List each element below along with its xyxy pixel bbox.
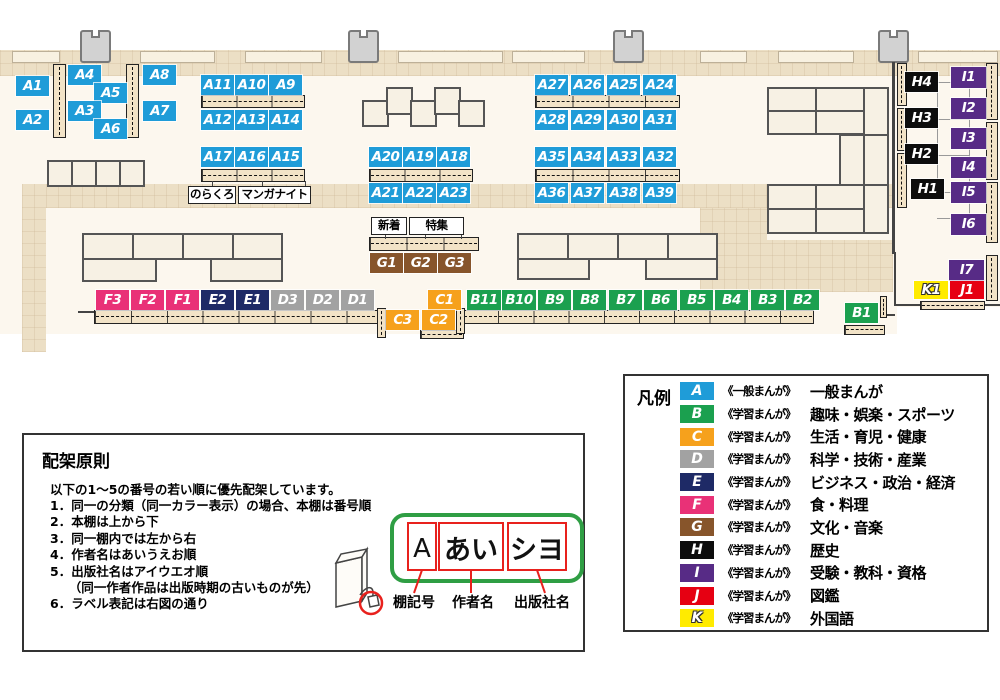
table-cell xyxy=(362,100,389,127)
shelf-label-A22: A22 xyxy=(403,183,436,203)
wall-right xyxy=(892,62,895,254)
legend-category: 趣味・娯楽・スポーツ xyxy=(810,404,955,425)
shelf-label-B6: B6 xyxy=(644,290,677,310)
table-cell xyxy=(767,87,817,112)
shelf-lead-line xyxy=(78,311,94,313)
shelf-label-A23: A23 xyxy=(437,183,470,203)
legend-category: 生活・育児・健康 xyxy=(810,426,926,447)
legend-row-D: D《学習まんが》科学・技術・産業 xyxy=(680,448,981,471)
bookshelf-strip-vertical xyxy=(53,64,66,138)
legend-badge-K: K xyxy=(680,609,714,627)
table-cell xyxy=(767,184,817,210)
shelf-label-A35: A35 xyxy=(535,147,568,167)
legend-badge-I: I xyxy=(680,564,714,582)
bookshelf-strip-vertical xyxy=(986,182,998,243)
shelf-label-D1: D1 xyxy=(341,290,374,310)
table-cell xyxy=(182,233,234,260)
legend-category: 外国語 xyxy=(810,608,854,629)
shelf-label-H4: H4 xyxy=(905,72,938,92)
caption-shelf-code: 棚記号 xyxy=(393,594,435,611)
shelf-label-I4: I4 xyxy=(951,157,986,178)
shelf-label-C1: C1 xyxy=(428,290,461,310)
table-cell xyxy=(863,134,889,188)
wall-segment xyxy=(12,51,60,63)
legend-row-A: A《一般まんが》一般まんが xyxy=(680,380,981,403)
legend-row-I: I《学習まんが》受験・教科・資格 xyxy=(680,562,981,585)
shelf-label-A13: A13 xyxy=(235,110,268,130)
shelf-label-H2: H2 xyxy=(905,144,938,164)
shelf-label-A18: A18 xyxy=(437,147,470,167)
legend-rows: A《一般まんが》一般まんがB《学習まんが》趣味・娯楽・スポーツC《学習まんが》生… xyxy=(680,380,981,630)
legend-category: 図鑑 xyxy=(810,585,839,606)
shelf-label-A36: A36 xyxy=(535,183,568,203)
shelf-label-I6: I6 xyxy=(951,214,986,235)
shelf-label-D2: D2 xyxy=(306,290,339,310)
legend-prefix: 《学習まんが》 xyxy=(722,429,810,445)
table-cell xyxy=(458,100,485,127)
author-sample: あい xyxy=(444,535,498,566)
table-cell xyxy=(82,258,157,282)
legend-badge-C: C xyxy=(680,428,714,446)
table-cell xyxy=(815,184,865,210)
legend-prefix: 《学習まんが》 xyxy=(722,451,810,467)
shelf-label-A27: A27 xyxy=(535,75,568,95)
shelf-label-A21: A21 xyxy=(369,183,402,203)
shelf-label-B10: B10 xyxy=(502,290,536,310)
legend-prefix: 《学習まんが》 xyxy=(722,406,810,422)
wall-segment xyxy=(398,51,503,63)
shelf-label-A20: A20 xyxy=(369,147,402,167)
publisher-sample: シヨ xyxy=(510,535,564,566)
shelf-label-A6: A6 xyxy=(94,119,127,139)
shelf-label-A37: A37 xyxy=(571,183,604,203)
book-icon xyxy=(336,549,382,614)
shelf-label-A12: A12 xyxy=(201,110,234,130)
shelf-label-A30: A30 xyxy=(607,110,640,130)
shelf-label-G3: G3 xyxy=(438,253,471,273)
pillar xyxy=(613,30,644,63)
shelf-label-H1: H1 xyxy=(911,179,944,199)
shelf-label-E2: E2 xyxy=(201,290,234,310)
legend-badge-G: G xyxy=(680,518,714,536)
shelf-label-A9: A9 xyxy=(269,75,302,95)
bookshelf-strip xyxy=(369,237,479,251)
legend-category: ビジネス・政治・経済 xyxy=(810,472,955,493)
shelf-label-A38: A38 xyxy=(607,183,640,203)
principles-title: 配架原則 xyxy=(42,447,110,472)
table-cell xyxy=(386,87,413,115)
pillar xyxy=(878,30,909,63)
shelf-label-K1: K1 xyxy=(914,281,948,299)
legend-prefix: 《学習まんが》 xyxy=(722,497,810,513)
shelf-label-A3: A3 xyxy=(68,101,101,121)
shelf-label-C3: C3 xyxy=(386,310,419,330)
table-cell xyxy=(567,233,619,260)
legend-badge-H: H xyxy=(680,541,714,559)
legend-category: 科学・技術・産業 xyxy=(810,449,926,470)
legend-row-C: C《学習まんが》生活・育児・健康 xyxy=(680,425,981,448)
table-cell xyxy=(863,184,889,234)
shelf-label-A1: A1 xyxy=(16,76,49,96)
shelf-label-A8: A8 xyxy=(143,65,176,85)
table-cell xyxy=(767,110,817,135)
principles-item: 3．同一棚内では左から右 xyxy=(50,531,371,547)
shelf-label-F3: F3 xyxy=(96,290,129,310)
principles-item: 1．同一の分類（同一カラー表示）の場合、本棚は番号順 xyxy=(50,498,371,514)
table-cell xyxy=(47,160,73,187)
shelf-label-A16: A16 xyxy=(235,147,268,167)
shelf-outline-line xyxy=(937,82,938,193)
shelf-label-A29: A29 xyxy=(571,110,604,130)
table-cell xyxy=(210,258,283,282)
shelf-label-C2: C2 xyxy=(422,310,455,330)
shelf-label-B5: B5 xyxy=(680,290,713,310)
principles-item: 6．ラベル表記は右図の通り xyxy=(50,596,371,612)
bookshelf-strip xyxy=(844,325,885,335)
bookshelf-strip-vertical xyxy=(986,122,998,180)
table-cell xyxy=(767,208,817,234)
principles-item: 4．作者名はあいうえお順 xyxy=(50,547,371,563)
legend-prefix: 《学習まんが》 xyxy=(722,474,810,490)
wall-segment xyxy=(245,51,322,63)
legend-title: 凡例 xyxy=(637,384,671,409)
shelf-label-D3: D3 xyxy=(271,290,304,310)
shelf-label-A14: A14 xyxy=(269,110,302,130)
shelf-label-B2: B2 xyxy=(786,290,819,310)
shelf-label-G2: G2 xyxy=(404,253,437,273)
shelf-label-A11: A11 xyxy=(201,75,234,95)
legend-category: 一般まんが xyxy=(810,381,883,402)
table-cell xyxy=(82,233,134,260)
legend-row-E: E《学習まんが》ビジネス・政治・経済 xyxy=(680,471,981,494)
legend-badge-E: E xyxy=(680,473,714,491)
shelf-label-I5: I5 xyxy=(951,182,986,203)
shelf-label-I7: I7 xyxy=(949,260,984,281)
legend-row-H: H《学習まんが》歴史 xyxy=(680,539,981,562)
legend-prefix: 《学習まんが》 xyxy=(722,610,810,626)
shelf-label-B4: B4 xyxy=(715,290,748,310)
shelf-label-E1: E1 xyxy=(236,290,269,310)
table-cell xyxy=(645,258,718,280)
legend-badge-J: J xyxy=(680,587,714,605)
table-cell xyxy=(410,100,437,127)
bookshelf-strip xyxy=(369,169,473,182)
caption-publisher: 出版社名 xyxy=(514,594,570,611)
wall-segment xyxy=(512,51,585,63)
table-cell xyxy=(667,233,718,260)
shelf-label-A34: A34 xyxy=(571,147,604,167)
table-cell xyxy=(863,87,889,136)
principles-item: 2．本棚は上から下 xyxy=(50,514,371,530)
shelf-label-A28: A28 xyxy=(535,110,568,130)
shelf-label-A31: A31 xyxy=(643,110,676,130)
table-cell xyxy=(95,160,121,187)
principles-item: （同一作者作品は出版時期の古いものが先） xyxy=(50,580,371,596)
shelf-label-A24: A24 xyxy=(643,75,676,95)
shelf-label-A32: A32 xyxy=(643,147,676,167)
bookshelf-strip xyxy=(535,95,680,108)
shelf-label-A10: A10 xyxy=(235,75,268,95)
bookshelf-strip xyxy=(201,169,305,182)
shelf-label-B11: B11 xyxy=(467,290,501,310)
bookshelf-strip xyxy=(94,310,382,324)
annotation-tokushu: 特集 xyxy=(409,217,464,235)
table-cell xyxy=(132,233,184,260)
shelf-label-A33: A33 xyxy=(607,147,640,167)
shelf-label-B7: B7 xyxy=(609,290,642,310)
legend-category: 受験・教科・資格 xyxy=(810,562,926,583)
walkway-bottom-right xyxy=(700,240,893,292)
table-cell xyxy=(815,208,865,234)
shelf-label-B3: B3 xyxy=(751,290,784,310)
principles-intro: 以下の1～5の番号の若い順に優先配架しています。 xyxy=(50,479,341,498)
shelf-end-post xyxy=(456,308,465,334)
table-cell xyxy=(815,110,865,135)
label-diagram: A あい シヨ 棚記号 作者名 出版社名 xyxy=(326,505,590,623)
shelf-label-I3: I3 xyxy=(951,128,986,149)
shelf-label-B9: B9 xyxy=(538,290,571,310)
wall-segment xyxy=(700,51,747,63)
caption-author: 作者名 xyxy=(452,594,494,611)
table-cell xyxy=(434,87,461,115)
legend-badge-B: B xyxy=(680,405,714,423)
bookshelf-strip xyxy=(201,95,305,108)
bookshelf-strip xyxy=(535,169,680,182)
bookshelf-strip-vertical xyxy=(986,63,998,120)
shelf-label-F2: F2 xyxy=(131,290,164,310)
table-cell xyxy=(839,134,865,188)
annotation-shinchaku: 新着 xyxy=(371,217,407,235)
pillar xyxy=(348,30,379,63)
table-cell xyxy=(815,87,865,112)
floor-map: A1A2A4A5A3A6A8A7A11A10A9A12A13A14A17A16A… xyxy=(0,0,1000,700)
shelf-label-A2: A2 xyxy=(16,110,49,130)
table-cell xyxy=(617,233,669,260)
bookshelf-strip-vertical xyxy=(126,64,139,138)
wall-segment xyxy=(918,51,998,63)
shelf-label-A39: A39 xyxy=(643,183,676,203)
legend-badge-A: A xyxy=(680,382,714,400)
wall-segment xyxy=(778,51,854,63)
shelf-end-post xyxy=(377,308,386,338)
wall-segment xyxy=(140,51,215,63)
legend-badge-D: D xyxy=(680,450,714,468)
annotation-manga-night: マンガナイト xyxy=(238,186,311,204)
legend-prefix: 《学習まんが》 xyxy=(722,565,810,581)
legend-row-G: G《学習まんが》文化・音楽 xyxy=(680,516,981,539)
bookshelf-strip xyxy=(920,301,985,310)
principles-item: 5．出版社名はアイウエオ順 xyxy=(50,564,371,580)
legend-row-J: J《学習まんが》図鑑 xyxy=(680,584,981,607)
legend-prefix: 《学習まんが》 xyxy=(722,519,810,535)
legend-row-K: K《学習まんが》外国語 xyxy=(680,607,981,630)
shelf-label-I2: I2 xyxy=(951,98,986,119)
table-cell xyxy=(119,160,145,187)
table-cell xyxy=(71,160,97,187)
bookshelf-strip xyxy=(462,310,814,324)
legend-category: 歴史 xyxy=(810,540,839,561)
legend-row-B: B《学習まんが》趣味・娯楽・スポーツ xyxy=(680,403,981,426)
shelf-label-A19: A19 xyxy=(403,147,436,167)
legend-row-F: F《学習まんが》食・料理 xyxy=(680,493,981,516)
legend-category: 食・料理 xyxy=(810,494,868,515)
table-cell xyxy=(517,258,590,280)
shelf-label-F1: F1 xyxy=(166,290,199,310)
bookshelf-strip-vertical xyxy=(986,255,998,301)
shelf-label-A17: A17 xyxy=(201,147,234,167)
shelf-label-J1: J1 xyxy=(950,281,984,299)
legend-prefix: 《学習まんが》 xyxy=(722,588,810,604)
shelf-label-B8: B8 xyxy=(573,290,606,310)
shelf-label-H3: H3 xyxy=(905,108,938,128)
walkway-left-leg xyxy=(22,184,46,352)
shelf-label-G1: G1 xyxy=(370,253,403,273)
legend-box: 凡例 A《一般まんが》一般まんがB《学習まんが》趣味・娯楽・スポーツC《学習まん… xyxy=(623,374,989,632)
pillar xyxy=(80,30,111,63)
shelf-label-A15: A15 xyxy=(269,147,302,167)
legend-prefix: 《一般まんが》 xyxy=(722,383,810,399)
principles-list: 1．同一の分類（同一カラー表示）の場合、本棚は番号順2．本棚は上から下3．同一棚… xyxy=(50,498,371,613)
shelf-label-A26: A26 xyxy=(571,75,604,95)
table-cell xyxy=(517,233,569,260)
legend-badge-F: F xyxy=(680,496,714,514)
shelf-label-B1: B1 xyxy=(845,303,878,323)
shelf-label-A5: A5 xyxy=(94,83,127,103)
shelf-label-A7: A7 xyxy=(143,101,176,121)
shelf-end-post xyxy=(880,296,887,318)
annotation-norakuro: のらくろ xyxy=(188,186,236,204)
legend-prefix: 《学習まんが》 xyxy=(722,542,810,558)
shelf-label-I1: I1 xyxy=(951,67,986,88)
shelf-label-A4: A4 xyxy=(68,65,101,85)
outside-area xyxy=(897,307,1000,337)
wall-right-lower xyxy=(894,252,896,306)
shelf-label-A25: A25 xyxy=(607,75,640,95)
legend-category: 文化・音楽 xyxy=(810,517,883,538)
table-cell xyxy=(232,233,283,260)
shelf-code-sample: A xyxy=(413,534,431,564)
